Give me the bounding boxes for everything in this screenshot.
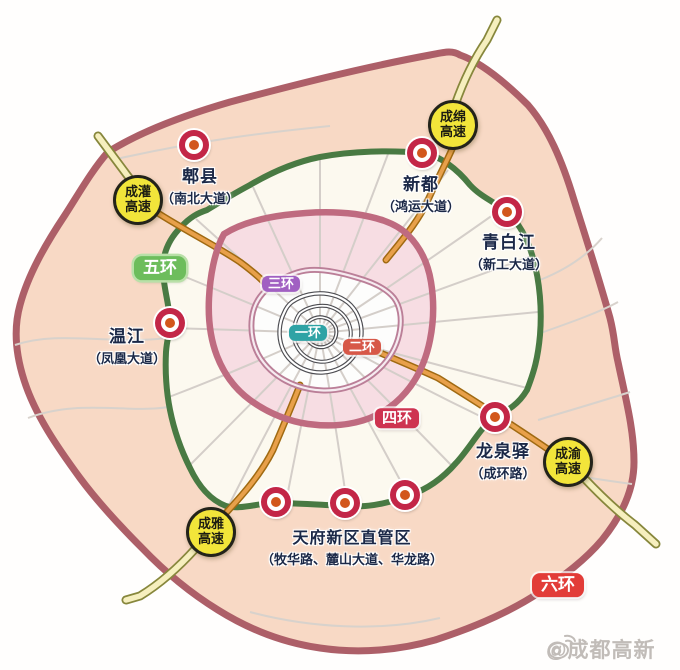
- chengya-line2: 高速: [198, 532, 224, 547]
- chengmian-expressway-label: 成绵 高速: [428, 100, 478, 150]
- chengmian-line2: 高速: [440, 125, 466, 140]
- district-name: 龙泉驿: [470, 437, 535, 462]
- interchange-marker-xindu: [407, 138, 437, 168]
- chengmian-line1: 成绵: [440, 110, 466, 125]
- interchange-marker-tianfu-3: [390, 480, 420, 510]
- district-label-wenjiang: 温江 （凤凰大道）: [88, 322, 166, 367]
- interchange-marker-tianfu-2: [330, 488, 360, 518]
- interchange-marker-qingbaijiang: [492, 197, 522, 227]
- ring-6-badge: 六环: [532, 573, 584, 597]
- district-label-tianfu: 天府新区直管区 （牧华路、麓山大道、华龙路）: [261, 524, 443, 568]
- district-road: （成环路）: [470, 463, 535, 482]
- interchange-marker-longquanyi: [480, 402, 510, 432]
- interchange-marker-pixian: [179, 130, 209, 160]
- chengya-expressway-label: 成雅 高速: [186, 507, 236, 557]
- district-label-xindu: 新都 （鸿运大道）: [382, 170, 460, 215]
- district-name: 新都: [382, 170, 460, 195]
- chengya-line1: 成雅: [198, 517, 224, 532]
- chengguan-expressway-label: 成灌 高速: [113, 175, 163, 225]
- district-road: （南北大道）: [161, 188, 239, 207]
- district-label-pixian: 郫县 （南北大道）: [161, 162, 239, 207]
- district-name: 青白江: [470, 228, 548, 253]
- weibo-icon: [546, 634, 576, 660]
- chengyu-line2: 高速: [555, 462, 581, 477]
- district-road: （凤凰大道）: [88, 348, 166, 367]
- ring-1-badge: 一环: [289, 325, 327, 341]
- chengyu-expressway-label: 成渝 高速: [543, 437, 593, 487]
- district-label-longquanyi: 龙泉驿 （成环路）: [470, 437, 535, 482]
- watermark: @成都高新: [546, 634, 655, 664]
- chengguan-line2: 高速: [125, 200, 151, 215]
- ring-3-badge: 三环: [262, 276, 300, 292]
- district-road: （新工大道）: [470, 254, 548, 273]
- district-label-qingbaijiang: 青白江 （新工大道）: [470, 228, 548, 273]
- ring-4-badge: 四环: [375, 408, 419, 428]
- chengguan-line1: 成灌: [125, 185, 151, 200]
- district-name: 天府新区直管区: [261, 524, 443, 548]
- district-road: （牧华路、麓山大道、华龙路）: [261, 549, 443, 568]
- district-name: 郫县: [161, 162, 239, 187]
- chengdu-ring-road-map: 一环 二环 三环 四环 五环 六环 成灌 高速 成绵 高速 成渝 高速 成雅 高…: [0, 0, 680, 670]
- ring-5-badge: 五环: [134, 256, 186, 280]
- interchange-marker-tianfu-1: [261, 487, 291, 517]
- chengyu-line1: 成渝: [555, 447, 581, 462]
- district-road: （鸿运大道）: [382, 196, 460, 215]
- ring-2-badge: 二环: [343, 339, 381, 355]
- district-name: 温江: [88, 322, 166, 347]
